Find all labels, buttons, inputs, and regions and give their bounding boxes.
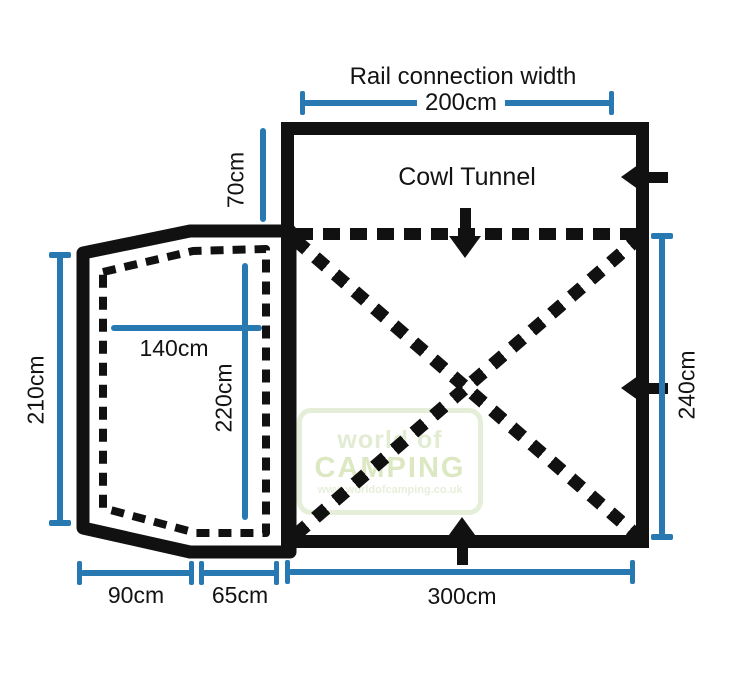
dim-label-300cm: 300cm (427, 583, 496, 610)
cowl-tunnel-label: Cowl Tunnel (398, 163, 536, 192)
dim-cap (300, 91, 305, 115)
dim-label-140cm: 140cm (139, 335, 208, 362)
dim-line-240cm (659, 236, 665, 537)
dim-label-240cm: 240cm (674, 350, 701, 419)
dim-cap (274, 561, 279, 585)
dim-label-90cm: 90cm (108, 582, 164, 609)
dim-cap (651, 534, 673, 540)
dim-cap (49, 252, 71, 258)
rail-connection-title: Rail connection width (350, 63, 577, 91)
dim-line-70cm (260, 128, 266, 222)
dim-label-200cm: 200cm (417, 89, 505, 117)
dim-cap (77, 561, 82, 585)
dim-cap (199, 561, 204, 585)
dim-cap (630, 560, 635, 584)
dim-cap (189, 561, 194, 585)
annex-outer-wall (83, 231, 290, 552)
dim-cap (49, 520, 71, 526)
dim-line-90cm (80, 570, 192, 576)
dim-label-210cm: 210cm (23, 355, 50, 424)
cowl-tunnel-divider-dashed (296, 228, 636, 240)
dim-line-220cm (242, 263, 248, 520)
dim-line-300cm (288, 569, 633, 575)
dim-cap (609, 91, 614, 115)
tent-floorplan-diagram: world of CAMPING www.worldofcamping.co.u… (0, 0, 743, 682)
dim-label-70cm: 70cm (223, 152, 250, 208)
dim-line-210cm (57, 255, 63, 523)
dim-label-65cm: 65cm (212, 582, 268, 609)
dim-label-220cm: 220cm (211, 363, 238, 432)
dim-line-140cm (111, 325, 262, 331)
dim-cap (285, 560, 290, 584)
dim-line-65cm (202, 570, 277, 576)
dim-cap (651, 233, 673, 239)
